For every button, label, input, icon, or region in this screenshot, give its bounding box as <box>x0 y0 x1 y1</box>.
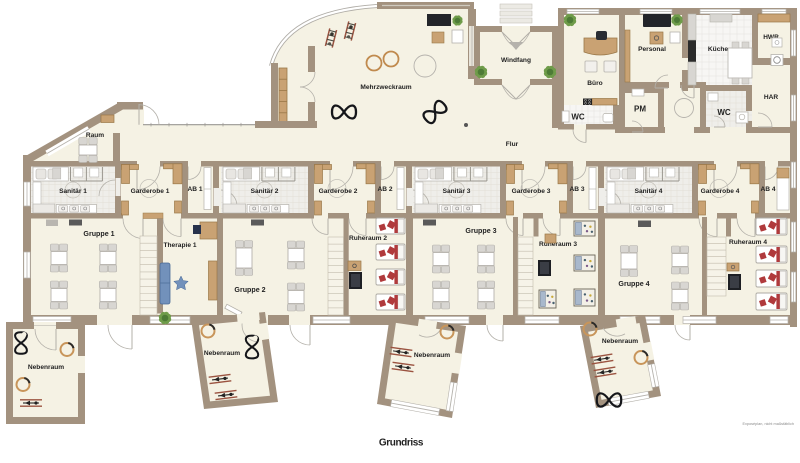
svg-text:Sanitär 1: Sanitär 1 <box>59 188 87 195</box>
svg-text:AB 2: AB 2 <box>377 186 392 193</box>
svg-text:Ruheraum 4: Ruheraum 4 <box>729 239 767 246</box>
svg-text:Nebenraum: Nebenraum <box>28 364 64 371</box>
svg-text:Gruppe 1: Gruppe 1 <box>83 230 114 238</box>
svg-text:AB 3: AB 3 <box>569 186 584 193</box>
svg-text:Therapie 1: Therapie 1 <box>164 242 197 249</box>
svg-text:Ruheraum 2: Ruheraum 2 <box>349 235 387 242</box>
svg-text:Nebenraum: Nebenraum <box>602 338 638 345</box>
svg-text:Exposéplan, nicht maßstäblich: Exposéplan, nicht maßstäblich <box>743 422 795 426</box>
svg-text:Sanitär 4: Sanitär 4 <box>635 188 663 195</box>
svg-text:AB 4: AB 4 <box>760 186 775 193</box>
svg-text:Büro: Büro <box>587 80 602 87</box>
svg-text:Garderobe 2: Garderobe 2 <box>319 188 358 195</box>
svg-text:Küche: Küche <box>708 46 728 53</box>
svg-text:Sanitär 2: Sanitär 2 <box>251 188 279 195</box>
svg-text:Gruppe 2: Gruppe 2 <box>234 286 265 294</box>
svg-text:PM: PM <box>634 105 646 114</box>
svg-text:Nebenraum: Nebenraum <box>414 352 450 359</box>
svg-text:AB 1: AB 1 <box>187 186 202 193</box>
svg-text:Garderobe 1: Garderobe 1 <box>131 188 170 195</box>
svg-text:WC: WC <box>571 113 585 122</box>
svg-text:HAR: HAR <box>764 94 779 101</box>
svg-text:Grundriss: Grundriss <box>379 438 424 449</box>
svg-text:Gruppe 3: Gruppe 3 <box>465 227 496 235</box>
svg-text:Windfang: Windfang <box>501 57 531 64</box>
svg-text:Garderobe 3: Garderobe 3 <box>512 188 551 195</box>
svg-text:Mehrzweckraum: Mehrzweckraum <box>360 84 411 91</box>
svg-text:Gruppe 4: Gruppe 4 <box>618 280 649 288</box>
svg-text:Garderobe 4: Garderobe 4 <box>701 188 740 195</box>
svg-text:WC: WC <box>717 108 731 117</box>
svg-text:Sanitär 3: Sanitär 3 <box>443 188 471 195</box>
svg-text:Flur: Flur <box>506 141 519 148</box>
svg-text:Nebenraum: Nebenraum <box>204 350 240 357</box>
svg-text:Personal: Personal <box>638 46 666 53</box>
